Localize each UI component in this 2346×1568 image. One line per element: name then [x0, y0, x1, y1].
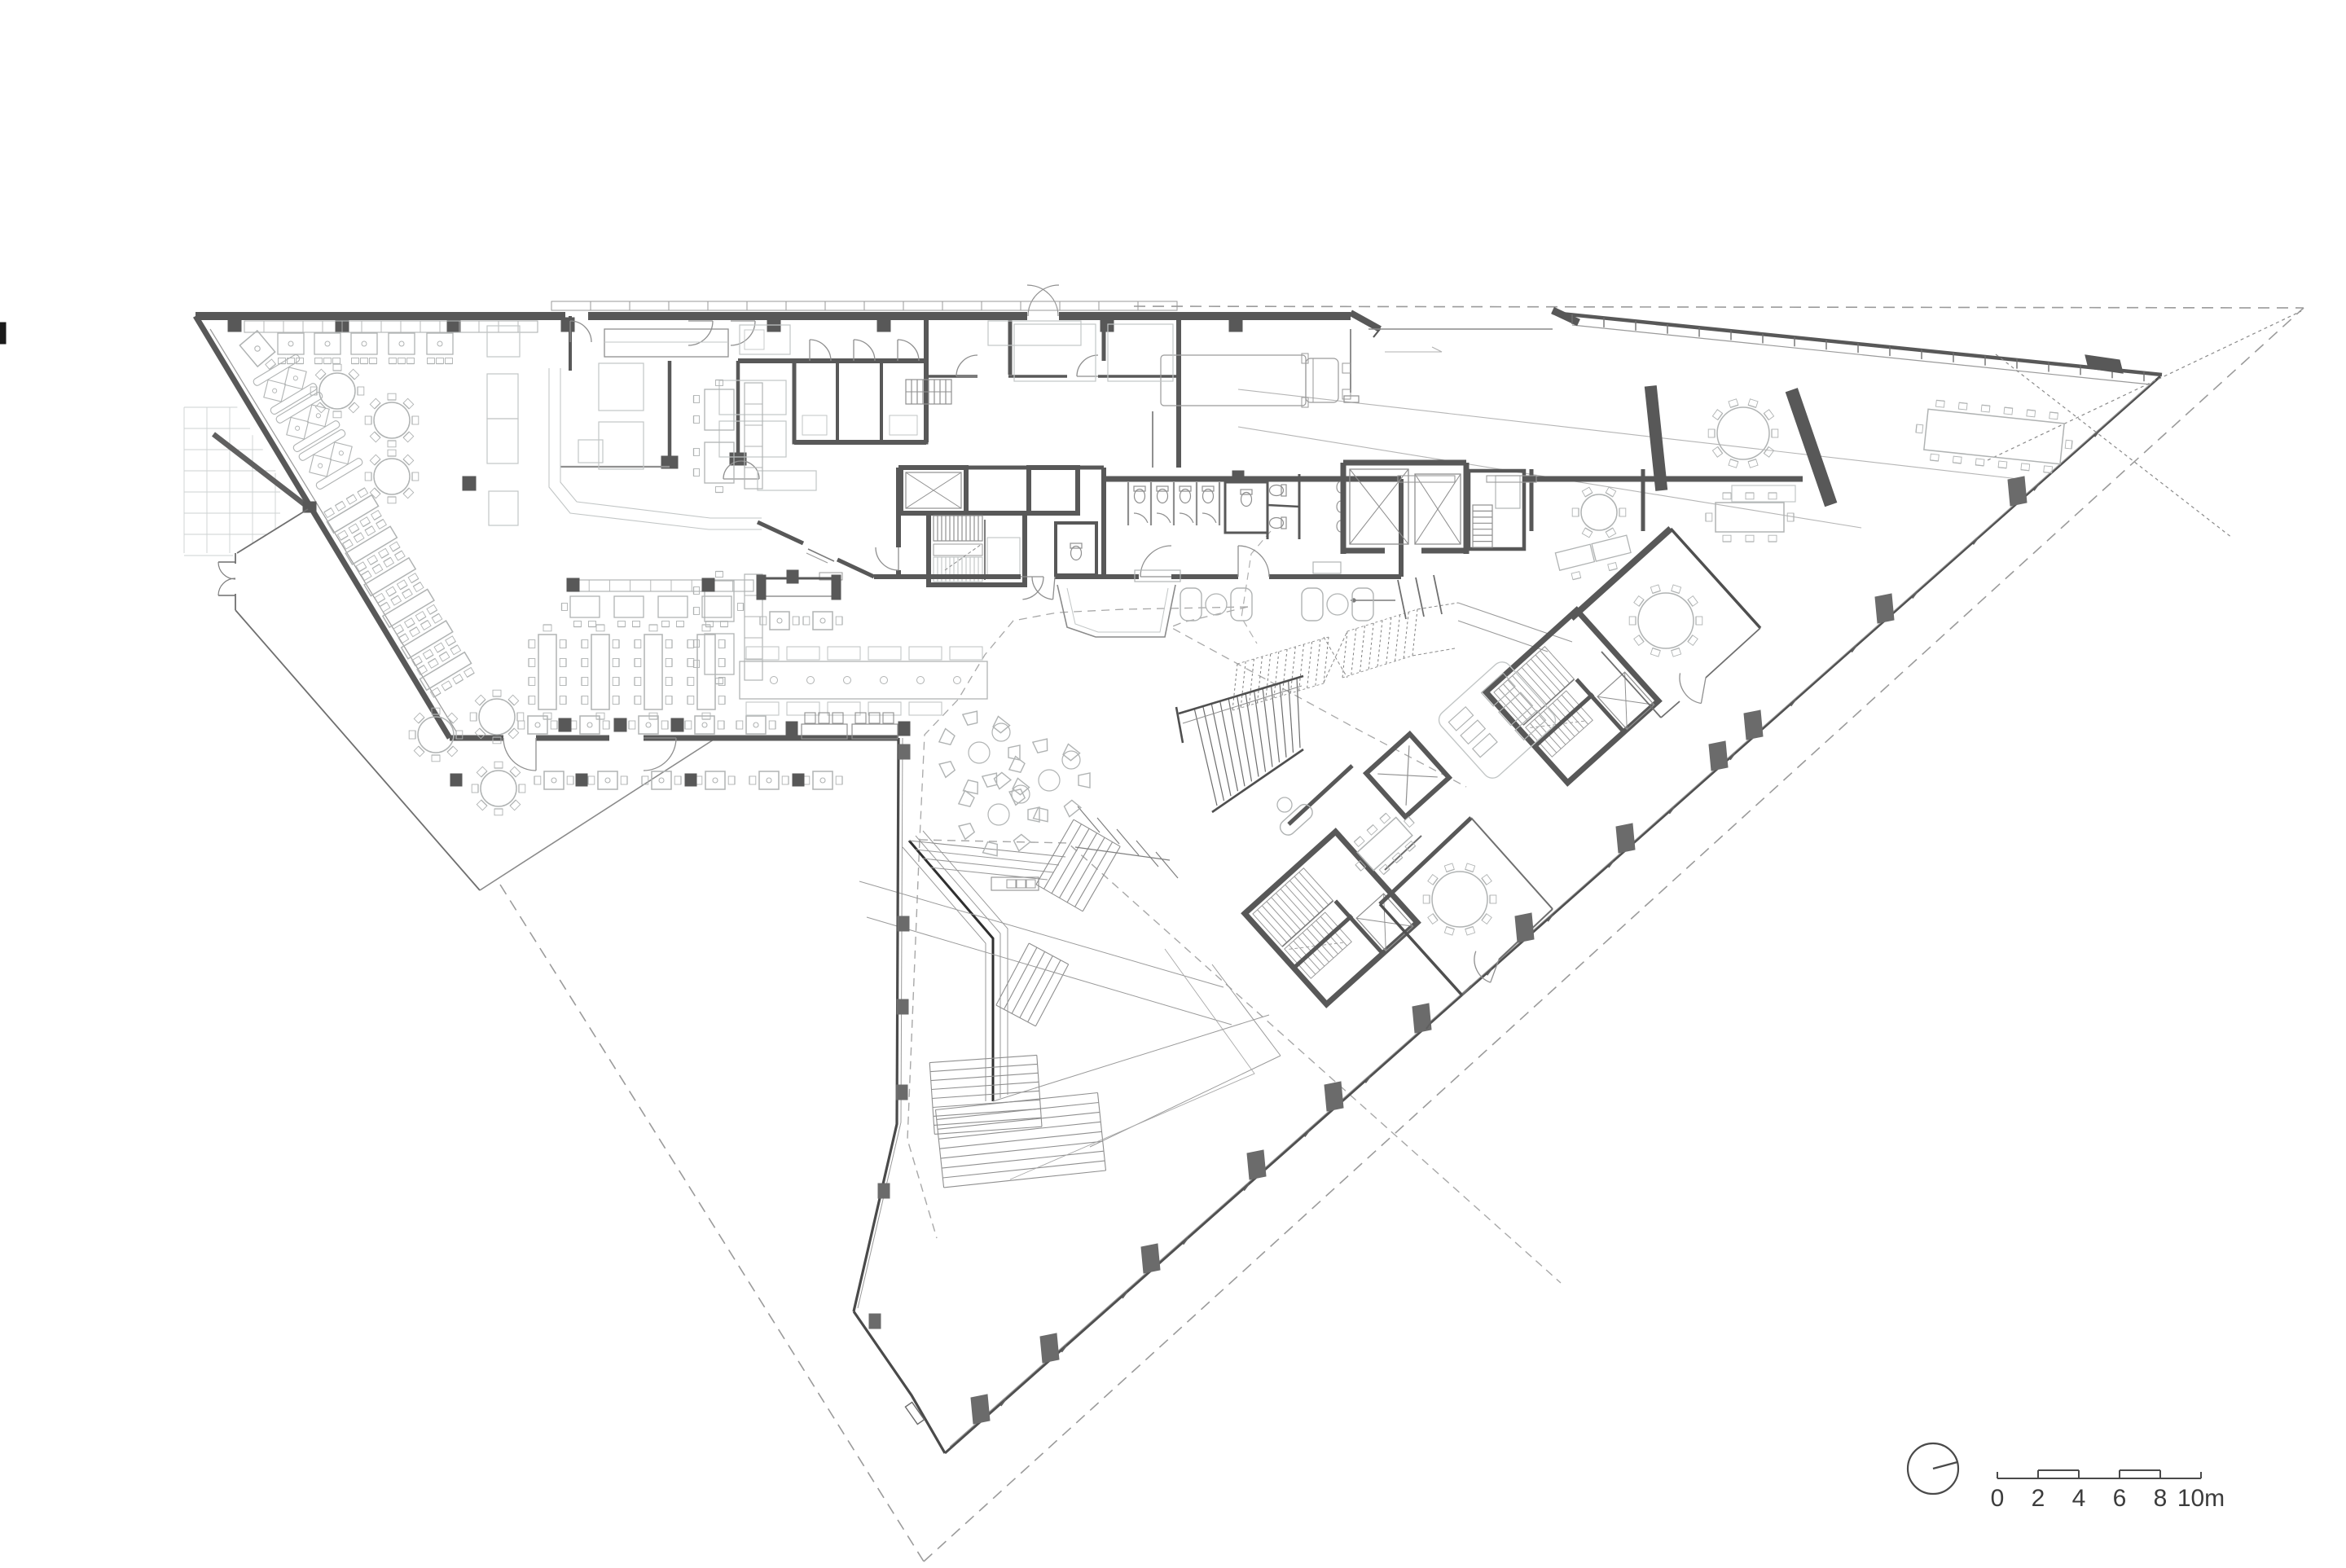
svg-text:4: 4 [2072, 1485, 2086, 1512]
svg-text:6: 6 [2113, 1485, 2127, 1512]
svg-text:0: 0 [1991, 1485, 2005, 1512]
svg-text:2: 2 [2032, 1485, 2045, 1512]
svg-text:8: 8 [2154, 1485, 2168, 1512]
svg-text:10m: 10m [2177, 1485, 2225, 1512]
